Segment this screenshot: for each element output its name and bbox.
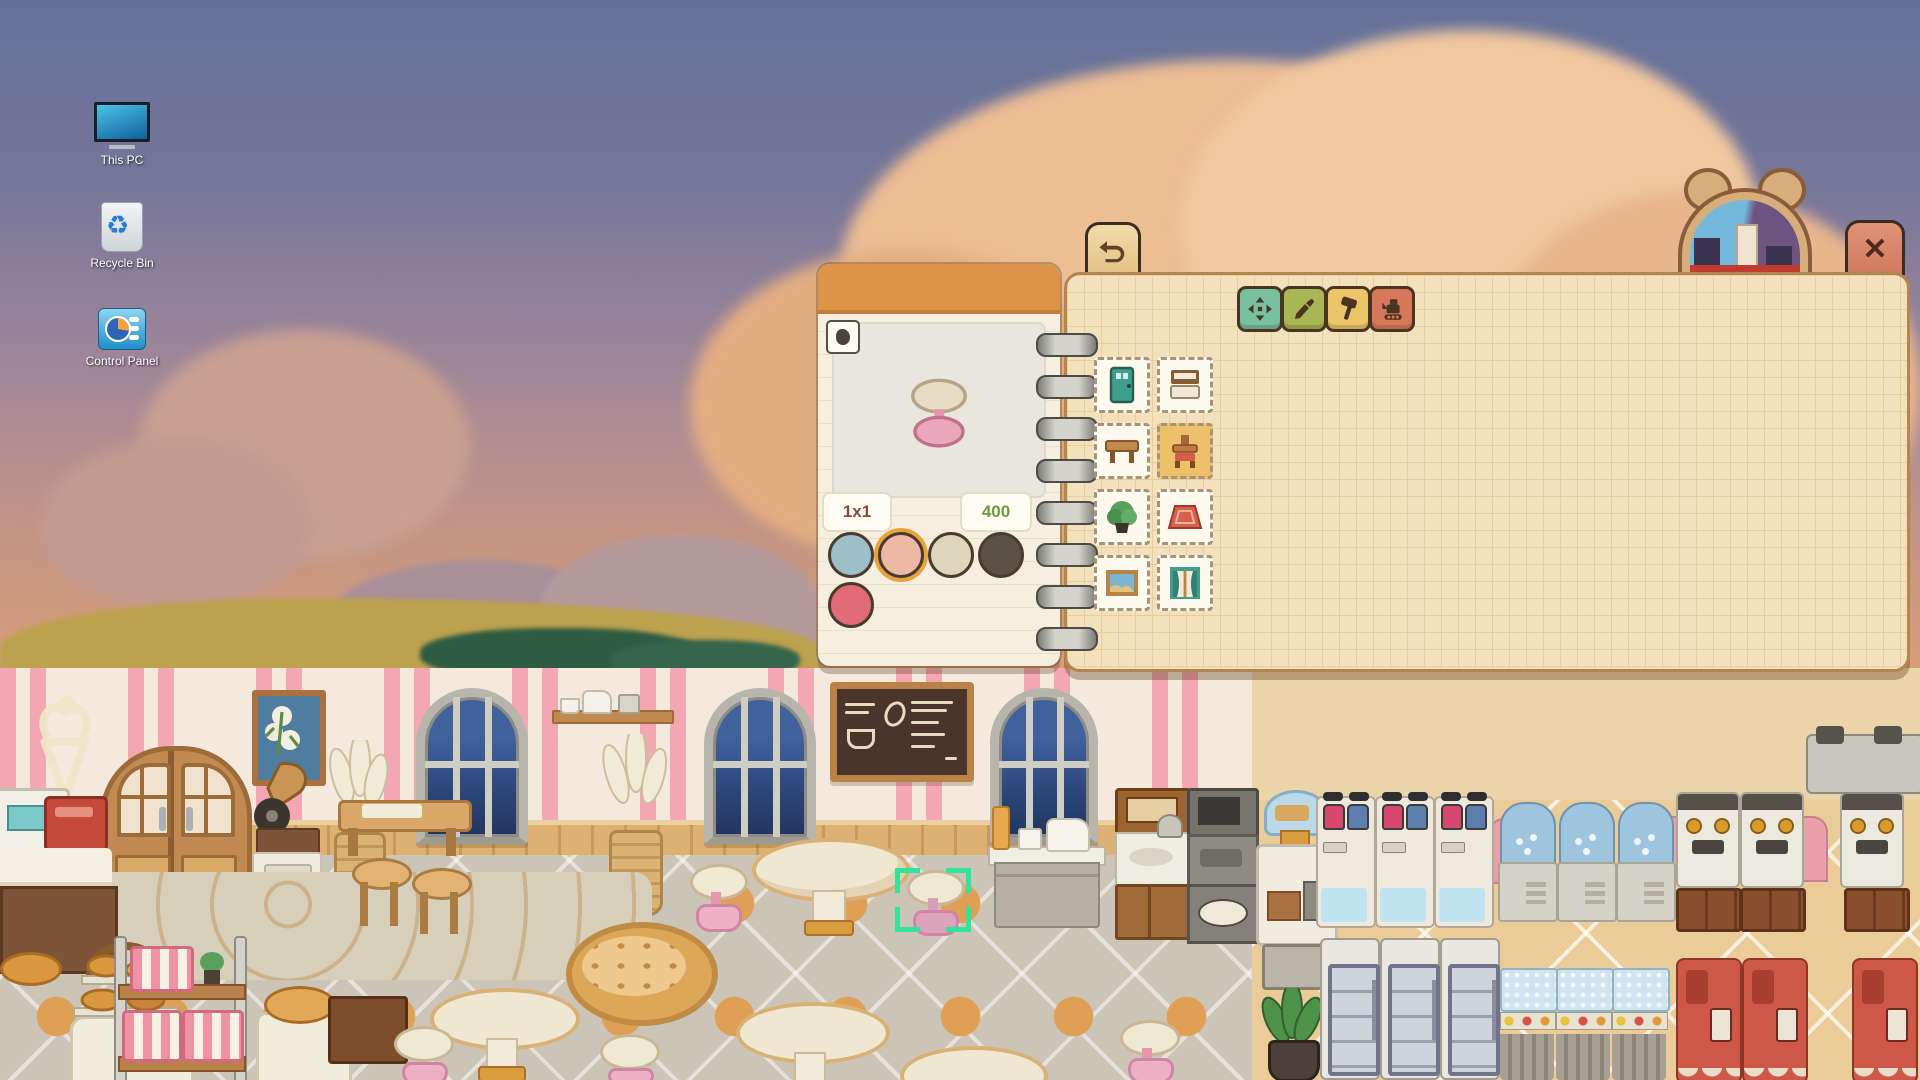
category-bed[interactable] — [1157, 357, 1213, 413]
jar-icon — [836, 329, 850, 345]
back-arrow-icon — [1098, 238, 1128, 264]
category-plant[interactable] — [1094, 489, 1150, 545]
spiral-ring — [1036, 627, 1098, 651]
dye-jar-button[interactable] — [826, 320, 860, 354]
coffee-crate[interactable] — [1676, 888, 1742, 932]
coffee-crate[interactable] — [1740, 888, 1806, 932]
door-icon — [1107, 366, 1137, 404]
cold-display-case[interactable] — [1500, 968, 1554, 1080]
preview-header — [818, 264, 1060, 314]
round-table[interactable] — [430, 988, 572, 1080]
sink-cabinet[interactable] — [1115, 788, 1185, 934]
category-window[interactable] — [1157, 555, 1213, 611]
soda-machine[interactable] — [1852, 958, 1918, 1080]
desktop-icon-label: This PC — [76, 153, 168, 167]
arched-window[interactable] — [704, 688, 816, 844]
hammer-icon — [1335, 296, 1361, 322]
plant-icon — [1105, 499, 1139, 535]
rug-icon — [1167, 502, 1203, 532]
control-panel-icon — [98, 308, 146, 350]
category-painting[interactable] — [1094, 555, 1150, 611]
color-swatch-beige[interactable] — [928, 532, 974, 578]
eyedropper-icon — [1292, 297, 1316, 321]
round-table[interactable] — [736, 1002, 882, 1080]
recycle-bin-icon: ♻ — [101, 202, 143, 252]
category-table[interactable] — [1094, 423, 1150, 479]
coffee-crate[interactable] — [1844, 888, 1910, 932]
category-rug[interactable] — [1157, 489, 1213, 545]
bulldozer-icon — [1378, 296, 1406, 322]
color-swatch-pink-selected[interactable] — [878, 532, 924, 578]
cloud — [40, 440, 310, 610]
preview-item-pink-stool — [894, 366, 984, 456]
soda-machine[interactable] — [1742, 958, 1808, 1080]
tea-shelf[interactable] — [552, 680, 670, 724]
chair-icon — [1169, 433, 1201, 469]
demolish-tool-button[interactable] — [1369, 286, 1415, 332]
pink-stool[interactable] — [392, 1026, 450, 1080]
wooden-table[interactable] — [338, 800, 466, 858]
category-door[interactable] — [1094, 357, 1150, 413]
this-pc-icon — [94, 102, 150, 142]
slushy-machine[interactable] — [1375, 796, 1435, 928]
wooden-stool[interactable] — [412, 868, 466, 940]
espresso-machine[interactable] — [1840, 792, 1904, 888]
window-icon — [1168, 565, 1202, 601]
move-tool-button[interactable] — [1237, 286, 1283, 332]
bakery-cart[interactable] — [112, 936, 248, 1080]
desktop-icon-label: Control Panel — [76, 354, 168, 368]
soft-serve-machine[interactable] — [1557, 802, 1613, 922]
item-preview-panel: 1x1 400 — [818, 264, 1060, 666]
desktop-icon-recycle-bin[interactable]: ♻ Recycle Bin — [76, 202, 168, 270]
desktop-icon-this-pc[interactable]: This PC — [76, 102, 168, 167]
spiral-ring — [1036, 333, 1098, 357]
table-icon — [1104, 435, 1140, 467]
item-preview-box — [832, 322, 1046, 498]
world-emblem-button[interactable] — [1678, 168, 1812, 274]
pink-stool[interactable] — [1118, 1020, 1176, 1080]
close-icon: ✕ — [1862, 232, 1887, 267]
category-chair[interactable] — [1157, 423, 1213, 479]
placement-selection-brackets — [895, 868, 971, 932]
menu-chalkboard[interactable] — [830, 682, 974, 782]
bed-icon — [1167, 368, 1203, 402]
pie[interactable] — [0, 952, 58, 984]
cold-display-case[interactable] — [1556, 968, 1610, 1080]
display-fridge[interactable] — [1320, 938, 1380, 1080]
slushy-machine[interactable] — [1316, 796, 1376, 928]
wooden-stool[interactable] — [352, 858, 406, 932]
spiral-ring — [1036, 459, 1098, 483]
slushy-machine[interactable] — [1434, 796, 1494, 928]
pink-stool[interactable] — [688, 864, 744, 930]
spiral-ring — [1036, 543, 1098, 567]
round-table[interactable] — [900, 1046, 1040, 1080]
eyedropper-tool-button[interactable] — [1281, 286, 1327, 332]
spiral-ring — [1036, 501, 1098, 525]
soft-serve-machine[interactable] — [1616, 802, 1672, 922]
item-size-badge: 1x1 — [822, 492, 892, 532]
spiral-ring — [1036, 417, 1098, 441]
desktop-icon-control-panel[interactable]: Control Panel — [76, 308, 168, 368]
soft-serve-machine[interactable] — [1498, 802, 1554, 922]
display-fridge[interactable] — [1380, 938, 1440, 1080]
espresso-machine[interactable] — [1676, 792, 1740, 888]
cafe-scene[interactable] — [0, 668, 1920, 1080]
round-table[interactable] — [752, 838, 902, 932]
potted-plant[interactable] — [1256, 988, 1326, 1080]
pie-rug[interactable] — [566, 922, 706, 1014]
back-button[interactable] — [1085, 222, 1141, 277]
kitchen-appliance[interactable] — [1806, 734, 1920, 794]
color-swatch-red[interactable] — [828, 582, 874, 628]
kitchen-hutch[interactable] — [988, 818, 1102, 930]
soda-machine[interactable] — [1676, 958, 1742, 1080]
cash-register[interactable] — [44, 796, 108, 852]
spiral-ring — [1036, 585, 1098, 609]
color-swatch-dark[interactable] — [978, 532, 1024, 578]
desktop-icon-label: Recycle Bin — [76, 256, 168, 270]
screen: This PC ♻ Recycle Bin Control Panel — [0, 0, 1920, 1080]
move-icon — [1247, 296, 1273, 322]
color-swatch-blue[interactable] — [828, 532, 874, 578]
item-price-badge: 400 — [960, 492, 1032, 532]
display-fridge[interactable] — [1440, 938, 1500, 1080]
espresso-machine[interactable] — [1740, 792, 1804, 888]
oven-unit[interactable] — [1187, 788, 1253, 938]
hammer-tool-button[interactable] — [1325, 286, 1371, 332]
painting-icon — [1104, 568, 1140, 598]
pink-stool[interactable] — [598, 1034, 656, 1080]
cold-display-case[interactable] — [1612, 968, 1666, 1080]
spiral-ring — [1036, 375, 1098, 399]
close-button[interactable]: ✕ — [1845, 220, 1905, 275]
